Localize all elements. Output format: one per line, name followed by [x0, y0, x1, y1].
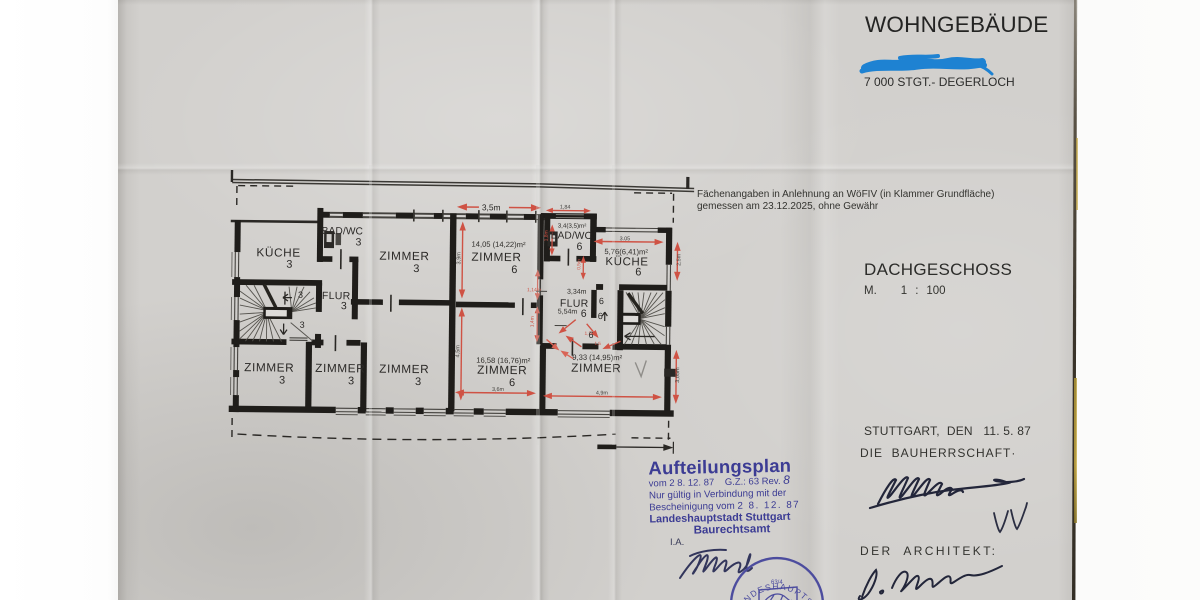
svg-text:6: 6: [509, 377, 515, 389]
svg-text:6: 6: [576, 241, 582, 253]
svg-text:3: 3: [286, 259, 292, 271]
svg-text:KÜCHE: KÜCHE: [256, 245, 300, 259]
svg-text:ZIMMER: ZIMMER: [315, 361, 365, 376]
svg-text:6: 6: [511, 264, 517, 276]
svg-text:5,76(6,41)m²: 5,76(6,41)m²: [604, 247, 648, 256]
svg-text:3: 3: [348, 375, 354, 387]
svg-text:3,6m: 3,6m: [492, 387, 505, 393]
svg-text:ZIMMER: ZIMMER: [244, 360, 294, 375]
svg-text:ZIMMER: ZIMMER: [477, 363, 527, 378]
svg-text:1,84: 1,84: [560, 205, 571, 211]
svg-text:6: 6: [581, 308, 587, 320]
svg-text:3,5m: 3,5m: [482, 202, 501, 212]
svg-text:ZIMMER: ZIMMER: [379, 249, 429, 264]
svg-text:3,05m: 3,05m: [675, 367, 681, 383]
svg-text:6: 6: [598, 311, 603, 321]
svg-text:4,9m: 4,9m: [596, 390, 609, 396]
svg-text:63/4: 63/4: [771, 580, 783, 586]
svg-text:3,4(3,5)m²: 3,4(3,5)m²: [558, 223, 587, 230]
svg-text:6: 6: [599, 296, 604, 306]
svg-text:KÜCHE: KÜCHE: [605, 256, 648, 268]
svg-text:3: 3: [341, 300, 347, 312]
svg-text:6: 6: [635, 266, 641, 278]
svg-text:1,5: 1,5: [594, 341, 601, 346]
svg-text:3,34m: 3,34m: [567, 289, 587, 296]
svg-text:3: 3: [298, 290, 303, 300]
svg-text:ZIMMER: ZIMMER: [379, 362, 429, 377]
svg-text:3: 3: [413, 263, 419, 275]
svg-text:3: 3: [355, 236, 361, 248]
svg-text:1,4m: 1,4m: [530, 316, 536, 327]
svg-text:3.05: 3.05: [620, 236, 631, 242]
svg-text:6: 6: [589, 330, 594, 340]
svg-text:3: 3: [279, 375, 285, 387]
svg-text:14,05 (14,22)m²: 14,05 (14,22)m²: [471, 240, 526, 250]
svg-text:3: 3: [415, 376, 421, 388]
svg-text:2,5m: 2,5m: [676, 253, 682, 266]
svg-text:3,9m: 3,9m: [456, 252, 462, 265]
svg-text:3: 3: [300, 320, 305, 330]
svg-text:4,5m: 4,5m: [455, 345, 461, 358]
svg-text:0,5m: 0,5m: [576, 259, 582, 270]
svg-text:ZIMMER: ZIMMER: [471, 250, 521, 265]
svg-text:BAD/WC: BAD/WC: [551, 230, 592, 241]
svg-text:1,8m: 1,8m: [544, 230, 550, 241]
